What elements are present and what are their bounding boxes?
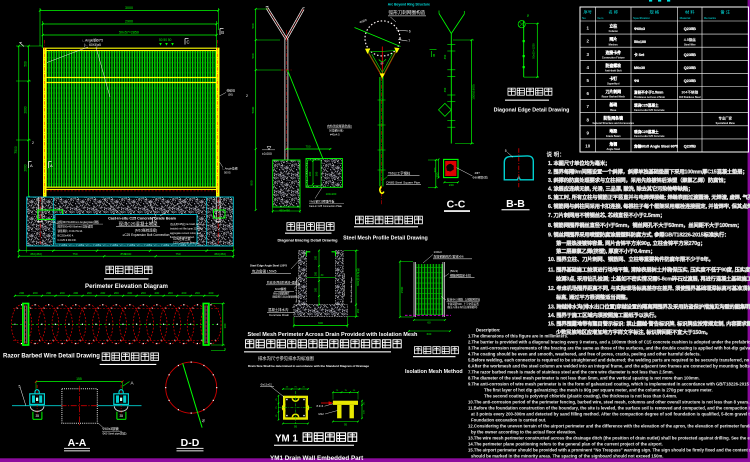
svg-text:Steel Mesh Profile Detail Draw: Steel Mesh Profile Detail Drawing — [343, 236, 428, 242]
svg-text:14.The perimeter plane positio: 14.The perimeter plane positioning refer… — [468, 442, 663, 447]
svg-text:Q235B: Q235B — [684, 145, 696, 149]
svg-text:Diagonal Bracing Detail Drawin: Diagonal Bracing Detail Drawing — [277, 237, 338, 242]
svg-text:Item: Item — [598, 16, 604, 20]
svg-text:450: 450 — [443, 54, 447, 59]
svg-text:8. 钢筋网围界钢丝直径不小于5mm，钢丝网孔不大于50mm: 8. 钢筋网围界钢丝直径不小于5mm，钢丝网孔不大于50mm，丝间距不大于100… — [548, 221, 742, 229]
svg-text:Tb6以工字钢柱: Tb6以工字钢柱 — [388, 170, 411, 175]
svg-text:2900: 2900 — [125, 19, 133, 23]
svg-text:5: 5 — [19, 385, 21, 389]
svg-text:Remarks: Remarks — [704, 16, 717, 20]
svg-text:Specification: Specification — [633, 16, 650, 20]
svg-text:Q235B: Q235B — [684, 53, 696, 57]
svg-text:防盗螺栓: 防盗螺栓 — [605, 63, 621, 68]
svg-text:11.Before the foundation const: 11.Before the foundation construction of… — [468, 406, 750, 411]
svg-text:155: 155 — [76, 377, 82, 381]
svg-text:角钢60x5 Angle Steel 60*5: 角钢60x5 Angle Steel 60*5 — [634, 144, 678, 149]
svg-text:10.The anti-corrosion period o: 10.The anti-corrosion period of the peri… — [468, 400, 750, 405]
svg-text:Perimeter Elevation Diagram: Perimeter Elevation Diagram — [85, 283, 169, 290]
svg-text:1. 本图尺寸单位均为毫米；: 1. 本图尺寸单位均为毫米； — [548, 159, 610, 167]
svg-text:The second coating is polyviny: The second coating is polyvinyl chloride… — [484, 394, 677, 399]
svg-text:弧形刀刺网圈构造: 弧形刀刺网圈构造 — [389, 9, 426, 16]
svg-text:aggregate cement colon, well: aggregate cement colon, well — [170, 232, 202, 235]
svg-text:304不锈钢: 304不锈钢 — [681, 90, 698, 95]
svg-text:±0.000: ±0.000 — [262, 152, 272, 156]
svg-text:混凝土排水沟: 混凝土排水沟 — [268, 307, 289, 312]
svg-text:200: 200 — [114, 291, 119, 295]
svg-text:600: 600 — [318, 321, 323, 325]
svg-text:9000: 9000 — [125, 252, 132, 256]
svg-text:6: 6 — [409, 30, 411, 34]
svg-text:Drain Size Shall be determined: Drain Size Shall be determined in accord… — [248, 364, 369, 368]
svg-text:1.The dimensions of this figur: 1.The dimensions of this figure are in m… — [468, 334, 568, 339]
svg-text:Q235B: Q235B — [684, 66, 696, 70]
svg-text:50X5: 50X5 — [224, 171, 231, 175]
svg-text:Foundation excavation is carri: Foundation excavation is carried out. — [471, 418, 546, 423]
svg-text:10. 围界立柱、刀片刺网、钢筋网、立柱等重要构件防腐年限不: 10. 围界立柱、刀片刺网、钢筋网、立柱等重要构件防腐年限不少于8年。 — [548, 255, 714, 263]
svg-text:内外(防腐角钢(防腐)): 内外(防腐角钢(防腐)) — [327, 124, 352, 128]
svg-text:2.The barrier is provided with: 2.The barrier is provided with a diagona… — [468, 340, 750, 345]
svg-text:Steel Profile Side Clean: Steel Profile Side Clean — [343, 273, 346, 297]
svg-text:240: 240 — [449, 183, 454, 187]
svg-text:(仅适用C25段) tie braid, wires: (仅适用C25段) tie braid, wires — [170, 222, 202, 226]
svg-text:卡 Set: 卡 Set — [634, 52, 645, 57]
svg-text:13.The wire mesh perimeter con: 13.The wire mesh perimeter constructed a… — [468, 436, 750, 441]
svg-text:50x25=1250: 50x25=1250 — [532, 43, 536, 59]
svg-text:Grade Beam: Grade Beam — [606, 135, 622, 138]
svg-text:Q235B: Q235B — [684, 79, 696, 83]
svg-text:(M10胀栓连接): (M10胀栓连接) — [135, 228, 157, 233]
svg-text:备 注: 备 注 — [720, 9, 730, 16]
svg-text:2. 围界每隔9m间隔设置一个斜撑，斜撑单独基础垫层下采用1: 2. 围界每隔9m间隔设置一个斜撑，斜撑单独基础垫层下采用100mm厚C15混凝… — [548, 167, 748, 175]
svg-text:300: 300 — [315, 287, 318, 292]
svg-text:12.Considering the uneven terr: 12.Considering the uneven terrain of the… — [468, 424, 750, 429]
svg-text:300: 300 — [308, 171, 312, 176]
svg-text:地梁: 地梁 — [609, 128, 617, 133]
svg-text:500: 500 — [251, 23, 255, 28]
svg-text:Steel Edge Angle Steel L50*5: Steel Edge Angle Steel L50*5 — [250, 264, 287, 268]
svg-text:7500: 7500 — [14, 146, 18, 154]
svg-text:专业厂家: 专业厂家 — [718, 116, 732, 121]
svg-text:300: 300 — [315, 271, 318, 276]
svg-text:角钢: 角钢 — [609, 142, 617, 147]
svg-text:YM1 Drain Wall Embedded Part: YM1 Drain Wall Embedded Part — [270, 455, 364, 462]
svg-text:300: 300 — [223, 323, 227, 328]
svg-text:750: 750 — [305, 144, 310, 148]
svg-text:1500(1800): 1500(1800) — [472, 84, 476, 99]
svg-text:200: 200 — [87, 291, 92, 295]
svg-text:1500: 1500 — [400, 286, 404, 293]
svg-text:标高, 通过平方根调整适当调整。: 标高, 通过平方根调整适当调整。 — [555, 293, 631, 301]
svg-text:750: 750 — [175, 252, 180, 256]
svg-text:The first layer of hot dip gal: The first layer of hot dip galvanizing: … — [484, 388, 713, 393]
svg-text:A-A: A-A — [68, 437, 87, 449]
svg-text:200: 200 — [60, 291, 65, 295]
svg-text:B: B — [433, 54, 436, 58]
svg-text:Material: Material — [680, 16, 691, 20]
svg-text:3000: 3000 — [125, 6, 133, 10]
svg-text:130x3: 130x3 — [434, 250, 443, 254]
svg-text:Φ60钢管(防): Φ60钢管(防) — [473, 176, 489, 180]
svg-text:M12: M12 — [319, 412, 325, 416]
svg-text:600(排水沟深): 600(排水沟深) — [355, 268, 360, 286]
svg-text:包边角钢 L50x5: 包边角钢 L50x5 — [252, 268, 277, 273]
svg-text:250: 250 — [356, 308, 360, 313]
svg-text:∟Angle钢60*5: ∟Angle钢60*5 — [82, 38, 103, 43]
svg-text:8.3≈4: 8.3≈4 — [317, 404, 324, 408]
svg-text:网片: 网片 — [609, 37, 617, 42]
svg-text:50x100: 50x100 — [634, 40, 646, 44]
svg-text:D-D: D-D — [181, 437, 200, 449]
svg-text:围界550x400 Barbed 底板锚固: 围界550x400 Barbed 底板锚固 — [58, 225, 94, 229]
svg-text:should be marked in the minori: should be marked in the minority areas. … — [471, 453, 663, 458]
svg-text:B: B — [221, 30, 224, 35]
svg-text:刀片刺网: 刀片刺网 — [605, 89, 621, 94]
svg-text:Angle Steel: Angle Steel — [606, 148, 620, 151]
svg-text:现浇C25混凝土: 现浇C25混凝土 — [634, 103, 659, 108]
svg-text:200: 200 — [100, 291, 105, 295]
svg-text:7.The razor barbed mesh is mad: 7.The razor barbed mesh is made of stain… — [468, 370, 674, 375]
svg-text:200: 200 — [33, 291, 38, 295]
svg-text:7: 7 — [408, 39, 410, 43]
svg-text:450: 450 — [443, 87, 447, 92]
svg-text:Φx12x02: Φx12x02 — [261, 383, 273, 387]
svg-text:Steel Wire: Steel Wire — [684, 44, 696, 47]
svg-text:Steel Mesh Perimeter Across Dr: Steel Mesh Perimeter Across Drain Provid… — [248, 332, 419, 338]
svg-text:少数民族地区应增加地方字样文字标注, 标识牌间距不宜大于15: 少数民族地区应增加地方字样文字标注, 标识牌间距不宜大于150m。 — [555, 328, 711, 336]
svg-text:第一层热浸镀锌容量, 网片含锌平方米90g, 立柱含锌平方米: 第一层热浸镀锌容量, 网片含锌平方米90g, 立柱含锌平方米270g； — [556, 239, 705, 247]
svg-text:Specialized Manu: Specialized Manu — [716, 123, 736, 125]
svg-text:2: 2 — [32, 141, 34, 145]
svg-text:by the owner according to the: by the owner according to the actual flo… — [471, 430, 576, 435]
svg-text:防坠网条锁: 防坠网条锁 — [604, 115, 624, 120]
svg-text:300: 300 — [433, 167, 437, 172]
svg-text:M10螺栓: M10螺栓 — [275, 286, 287, 291]
svg-text:600: 600 — [427, 332, 432, 336]
svg-text:6. 钢筋网与斜柱间采用卡扣连接, 每根柱子每个框架采用螺栓: 6. 钢筋网与斜柱间采用卡扣连接, 每根柱子每个框架采用螺栓连接固定, 并皆焊牢… — [548, 202, 750, 210]
svg-text:12. 考虑机场围界距离不同, 与实际现场标高差存在差异,: 12. 考虑机场围界距离不同, 与实际现场标高差存在差异, 须使围界基础埋深标高… — [548, 284, 750, 292]
svg-text:300: 300 — [315, 171, 319, 176]
svg-text:#45x4.5: #45x4.5 — [330, 133, 340, 137]
svg-text:11. 围界基础施工前须进行场地平整, 清除表层树土并确保压: 11. 围界基础施工前须进行场地平整, 清除表层树土并确保压实, 压实度不低于9… — [548, 265, 750, 273]
svg-text:Φ60 Steel pipe(防腐): Φ60 Steel pipe(防腐) — [102, 432, 126, 436]
svg-text:基础: 基础 — [608, 102, 617, 107]
svg-text:304 Stainless Steel: 304 Stainless Steel — [679, 96, 701, 99]
svg-text:15.The airport perimeter shoul: 15.The airport perimeter should be provi… — [468, 448, 750, 453]
svg-text:Steel Mesh Besides Paper: Steel Mesh Besides Paper — [350, 277, 353, 303]
svg-text:DN85 Steel Square Pipe: DN85 Steel Square Pipe — [386, 180, 420, 184]
svg-text:Φ8: Φ8 — [634, 79, 639, 83]
svg-text:4.5钢丝: 4.5钢丝 — [684, 37, 697, 42]
svg-text:Φ60x3: Φ60x3 — [634, 27, 645, 31]
svg-text:50x57=2850: 50x57=2850 — [119, 30, 139, 34]
svg-text:9. 钢丝网围界采用喷塑防腐涂层塑料防腐方式, 参照GB/T: 9. 钢丝网围界采用喷塑防腐涂层塑料防腐方式, 参照GB/T18226-2015… — [548, 230, 729, 238]
svg-text:(做法与排水沟包边角钢相同): (做法与排水沟包边角钢相同) — [447, 305, 477, 309]
svg-text:YM1钢T2预埋件板: YM1钢T2预埋件板 — [309, 199, 334, 204]
svg-text:Anti-theft Bolt: Anti-theft Bolt — [605, 70, 622, 73]
svg-text:焊接钢筋网片(镀锌)Φ6: 焊接钢筋网片(镀锌)Φ6 — [434, 254, 464, 259]
svg-text:直径不小于2.5mm: 直径不小于2.5mm — [634, 90, 663, 95]
svg-text:10: 10 — [585, 144, 590, 149]
svg-text:C: C — [154, 219, 157, 223]
svg-text:Superfluol: Superfluol — [607, 83, 620, 86]
svg-text:50 50 50: 50 50 50 — [159, 38, 172, 42]
svg-text:Description:: Description: — [476, 328, 500, 333]
svg-text:≥C25 Expansion Bolt Connection: ≥C25 Expansion Bolt Connection — [123, 233, 170, 237]
svg-text:15. 围界围露地带有醒目警示标识: 禁止翻越·警告标识牌,: 15. 围界围露地带有醒目警示标识: 禁止翻越·警告标识牌, 标识牌应按常规定制… — [548, 319, 750, 327]
svg-text:450(450): 450(450) — [30, 252, 42, 256]
svg-text:60: 60 — [427, 321, 431, 325]
svg-text:Cast-in-situ C25 Concrete: Cast-in-situ C25 Concrete — [634, 109, 665, 112]
svg-text:Razor Barbed Mesh: Razor Barbed Mesh — [602, 96, 626, 99]
svg-text:8.The diameter of the steel me: 8.The diameter of the steel mesh perimet… — [468, 376, 700, 381]
svg-text:立柱: 立柱 — [609, 24, 617, 29]
svg-text:Arc Beyond Ring Structure: Arc Beyond Ring Structure — [388, 3, 430, 7]
svg-text:YM 1: YM 1 — [275, 434, 298, 445]
svg-text:2000: 2000 — [24, 164, 28, 171]
svg-text:200: 200 — [168, 291, 173, 295]
svg-text:No: No — [582, 16, 586, 20]
svg-text:4Φ?: 4Φ? — [475, 171, 481, 175]
svg-text:at 3 points every 200-300m and: at 3 points every 200-300m and detected … — [471, 412, 750, 417]
svg-text:规 格: 规 格 — [650, 9, 660, 16]
svg-text:6.After the workmesh and the s: 6.After the workmesh and the steel colum… — [468, 364, 750, 369]
svg-text:3.The anti-corrosion requireme: 3.The anti-corrosion requirements of the… — [468, 346, 750, 351]
svg-text:200: 200 — [46, 291, 51, 295]
svg-text:Isolation Mesh Method: Isolation Mesh Method — [405, 369, 463, 375]
svg-text:Q235B: Q235B — [684, 27, 696, 31]
svg-text:13. 跨越排水沟(排水出口位置)穿越设置的隔离网围界及采用: 13. 跨越排水沟(排水出口位置)穿越设置的隔离网围界及采用防盗保护措施见沟壁的… — [548, 302, 750, 310]
svg-text:Connection Fixture: Connection Fixture — [602, 56, 625, 59]
svg-text:A: A — [30, 163, 33, 168]
svg-text:B-B: B-B — [506, 198, 525, 210]
svg-text:Meshes: Meshes — [609, 43, 619, 46]
svg-text:序号: 序号 — [584, 9, 592, 16]
svg-text:Φ60x3钢管: Φ60x3钢管 — [102, 426, 119, 431]
svg-text:说 明：: 说 明： — [547, 151, 565, 159]
svg-text:现浇C25混凝土: 现浇C25混凝土 — [634, 129, 659, 134]
svg-text:200: 200 — [19, 291, 24, 295]
svg-text:braided net filled gear 225 th: braided net filled gear 225 the — [170, 227, 202, 230]
svg-text:Cast-in C25 Connection Plate: Cast-in C25 Connection Plate — [309, 205, 343, 208]
svg-text:4. 涂层应连续无损, 光滑, 三品漂, 酸洗, 除去其它污: 4. 涂层应连续无损, 光滑, 三品漂, 酸洗, 除去其它污染物等缺陷； — [548, 184, 693, 192]
svg-text:(∟ 60X6)x5: (∟ 60X6)x5 — [84, 43, 101, 47]
svg-text:4.The coating should be even a: 4.The coating should be even and smooth,… — [468, 352, 701, 357]
svg-text:Base: Base — [610, 109, 617, 112]
svg-text:钢筋网固定卡扣: 钢筋网固定卡扣 — [450, 272, 471, 277]
svg-text:Diagonal Edge Detail Drawing: Diagonal Edge Detail Drawing — [494, 108, 570, 114]
svg-text:14. 围界于施工区域内须按照施工图纸予以执行。: 14. 围界于施工区域内须按照施工图纸予以执行。 — [548, 311, 659, 319]
svg-text:C25砼排土梁: C25砼排土梁 — [173, 236, 191, 241]
svg-text:500: 500 — [24, 61, 28, 67]
svg-text:35: 35 — [119, 414, 123, 418]
svg-text:卡钉: 卡钉 — [609, 76, 617, 81]
svg-text:第二层聚氯乙烯(挤塑), 厚度不小于0.4mm；: 第二层聚氯乙烯(挤塑), 厚度不小于0.4mm； — [556, 247, 655, 255]
svg-text:Concrete Drain: Concrete Drain — [269, 313, 290, 317]
svg-text:A: A — [50, 163, 53, 168]
svg-text:200: 200 — [154, 291, 159, 295]
svg-text:200: 200 — [181, 291, 186, 295]
svg-text:C-C: C-C — [447, 199, 466, 211]
svg-text:卡钩间距500, 上下交错设置: 卡钩间距500, 上下交错设置 — [447, 302, 479, 306]
svg-text:(50): (50) — [228, 92, 233, 96]
svg-text:200: 200 — [209, 291, 214, 295]
svg-text:材 料: 材 料 — [685, 9, 695, 16]
svg-text:450(450): 450(450) — [214, 252, 226, 256]
svg-text:Cast-in-situ C25 Concrete Grad: Cast-in-situ C25 Concrete Grade Beam — [108, 217, 177, 221]
svg-text:5. 施工时, 所有立柱与钢筋正平竖直并与电焊焊接缝; 焊缝: 5. 施工时, 所有立柱与钢筋正平竖直并与电焊焊接缝; 焊缝表面过渡圆滑, 无焊… — [548, 193, 750, 201]
svg-text:排水沟尺寸参见排水沟标准图: 排水沟尺寸参见排水沟标准图 — [258, 355, 314, 362]
svg-text:M6x30: M6x30 — [634, 66, 645, 70]
svg-text:95: 95 — [294, 425, 298, 429]
svg-text:95: 95 — [344, 422, 347, 426]
svg-text:Razor Barbed Wire Detail Drawi: Razor Barbed Wire Detail Drawing — [3, 354, 100, 360]
svg-text:5.Before welding, each connect: 5.Before welding, each connector is requ… — [468, 358, 750, 363]
svg-text:(钢筋网与包边角钢焊接): (钢筋网与包边角钢焊接) — [272, 295, 299, 299]
svg-text:200: 200 — [73, 291, 78, 295]
svg-text:Cast-in-situ C25 Concrete: Cast-in-situ C25 Concrete — [634, 135, 665, 138]
svg-text:750: 750 — [72, 252, 77, 256]
svg-text:C-C25.9 FR-FR.: C-C25.9 FR-FR. — [58, 238, 77, 242]
svg-text:防腐漆(两道防锈漆+面漆): 防腐漆(两道防锈漆+面漆) — [267, 281, 299, 285]
svg-text:Thickness not less 2.5mm: Thickness not less 2.5mm — [634, 96, 666, 99]
svg-text:Column: Column — [609, 30, 619, 33]
svg-text:50角钢(6米): 50角钢(6米) — [329, 129, 343, 133]
svg-text:2000: 2000 — [24, 106, 28, 113]
svg-text:35: 35 — [35, 414, 39, 418]
svg-text:名 称: 名 称 — [608, 9, 618, 16]
svg-text:检测3点, 采用钻孔检测; 土基如不密实情况需5-8cm碎石: 检测3点, 采用钻孔检测; 土基如不密实情况需5-8cm碎石过渡层, 再进行混凝… — [556, 274, 750, 282]
svg-text:500: 500 — [251, 53, 255, 58]
svg-text:200: 200 — [195, 291, 200, 295]
svg-text:200: 200 — [127, 291, 132, 295]
svg-text:800: 800 — [250, 180, 254, 185]
svg-text:7. 刀片刺网用不锈钢丝芯, 芯线直径不小于2.5mm；: 7. 刀片刺网用不锈钢丝芯, 芯线直径不小于2.5mm； — [548, 211, 665, 219]
svg-text:Φ6x1钢筋网片: Φ6x1钢筋网片 — [273, 291, 290, 295]
svg-text:200: 200 — [141, 291, 146, 295]
svg-text:300: 300 — [315, 255, 318, 260]
svg-text:C25 Concrete Beam: C25 Concrete Beam — [173, 240, 197, 244]
svg-text:100x200: 100x200 — [326, 192, 337, 196]
svg-text:钢筋网片 J=40-70x14.: 钢筋网片 J=40-70x14. — [58, 229, 84, 233]
svg-text:General Structure and Accessor: General Structure and Accessories — [592, 122, 634, 125]
svg-text:3. 斜撑的防腐处理要求与立柱相同，采用先热镀锌后涂塑（聚氯: 3. 斜撑的防腐处理要求与立柱相同，采用先热镀锌后涂塑（聚氯乙烯）防腐蚀； — [548, 176, 729, 184]
svg-text:5000: 5000 — [251, 106, 255, 113]
svg-text:破除DN70x400mm Angle(plate)钢板: 破除DN70x400mm Angle(plate)钢板 — [58, 220, 100, 224]
svg-text:5: 5 — [505, 149, 507, 153]
svg-text:C: C — [187, 40, 190, 45]
svg-text:连接卡件: 连接卡件 — [605, 50, 621, 55]
svg-text:挂钩Φ6.5钢筋, 与钢筋网焊接: 挂钩Φ6.5钢筋, 与钢筋网焊接 — [447, 298, 480, 302]
svg-text:2: 2 — [246, 94, 248, 98]
svg-text:450x450: 450x450 — [279, 209, 290, 213]
svg-text:BC250x400 4.: BC250x400 4. — [58, 233, 75, 237]
svg-text:9.The anti-corrosion of wire m: 9.The anti-corrosion of wire mesh perime… — [468, 382, 750, 387]
